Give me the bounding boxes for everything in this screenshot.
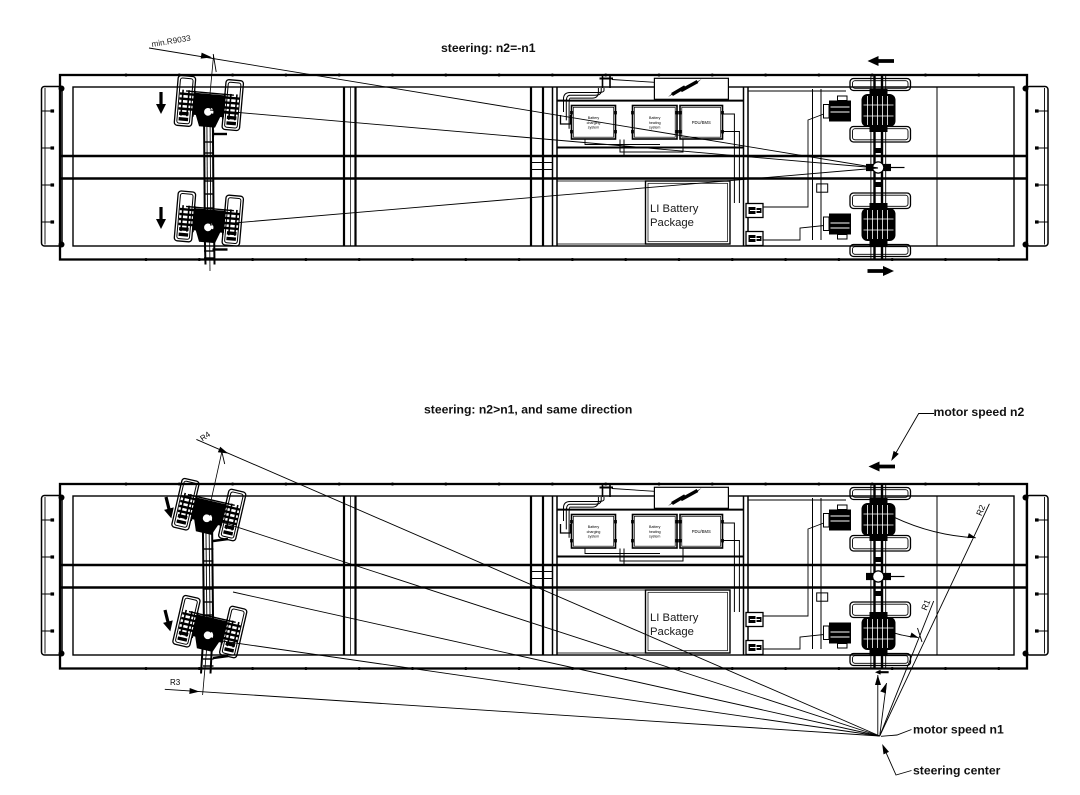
svg-text:steering: n2=-n1: steering: n2=-n1 [441,41,536,55]
svg-text:steering center: steering center [913,764,1001,778]
svg-text:R3: R3 [170,678,181,687]
svg-text:motor speed n1: motor speed n1 [913,723,1004,737]
svg-text:motor speed n2: motor speed n2 [934,405,1025,419]
svg-text:steering: n2>n1, and same dir: steering: n2>n1, and same direction [424,403,632,417]
